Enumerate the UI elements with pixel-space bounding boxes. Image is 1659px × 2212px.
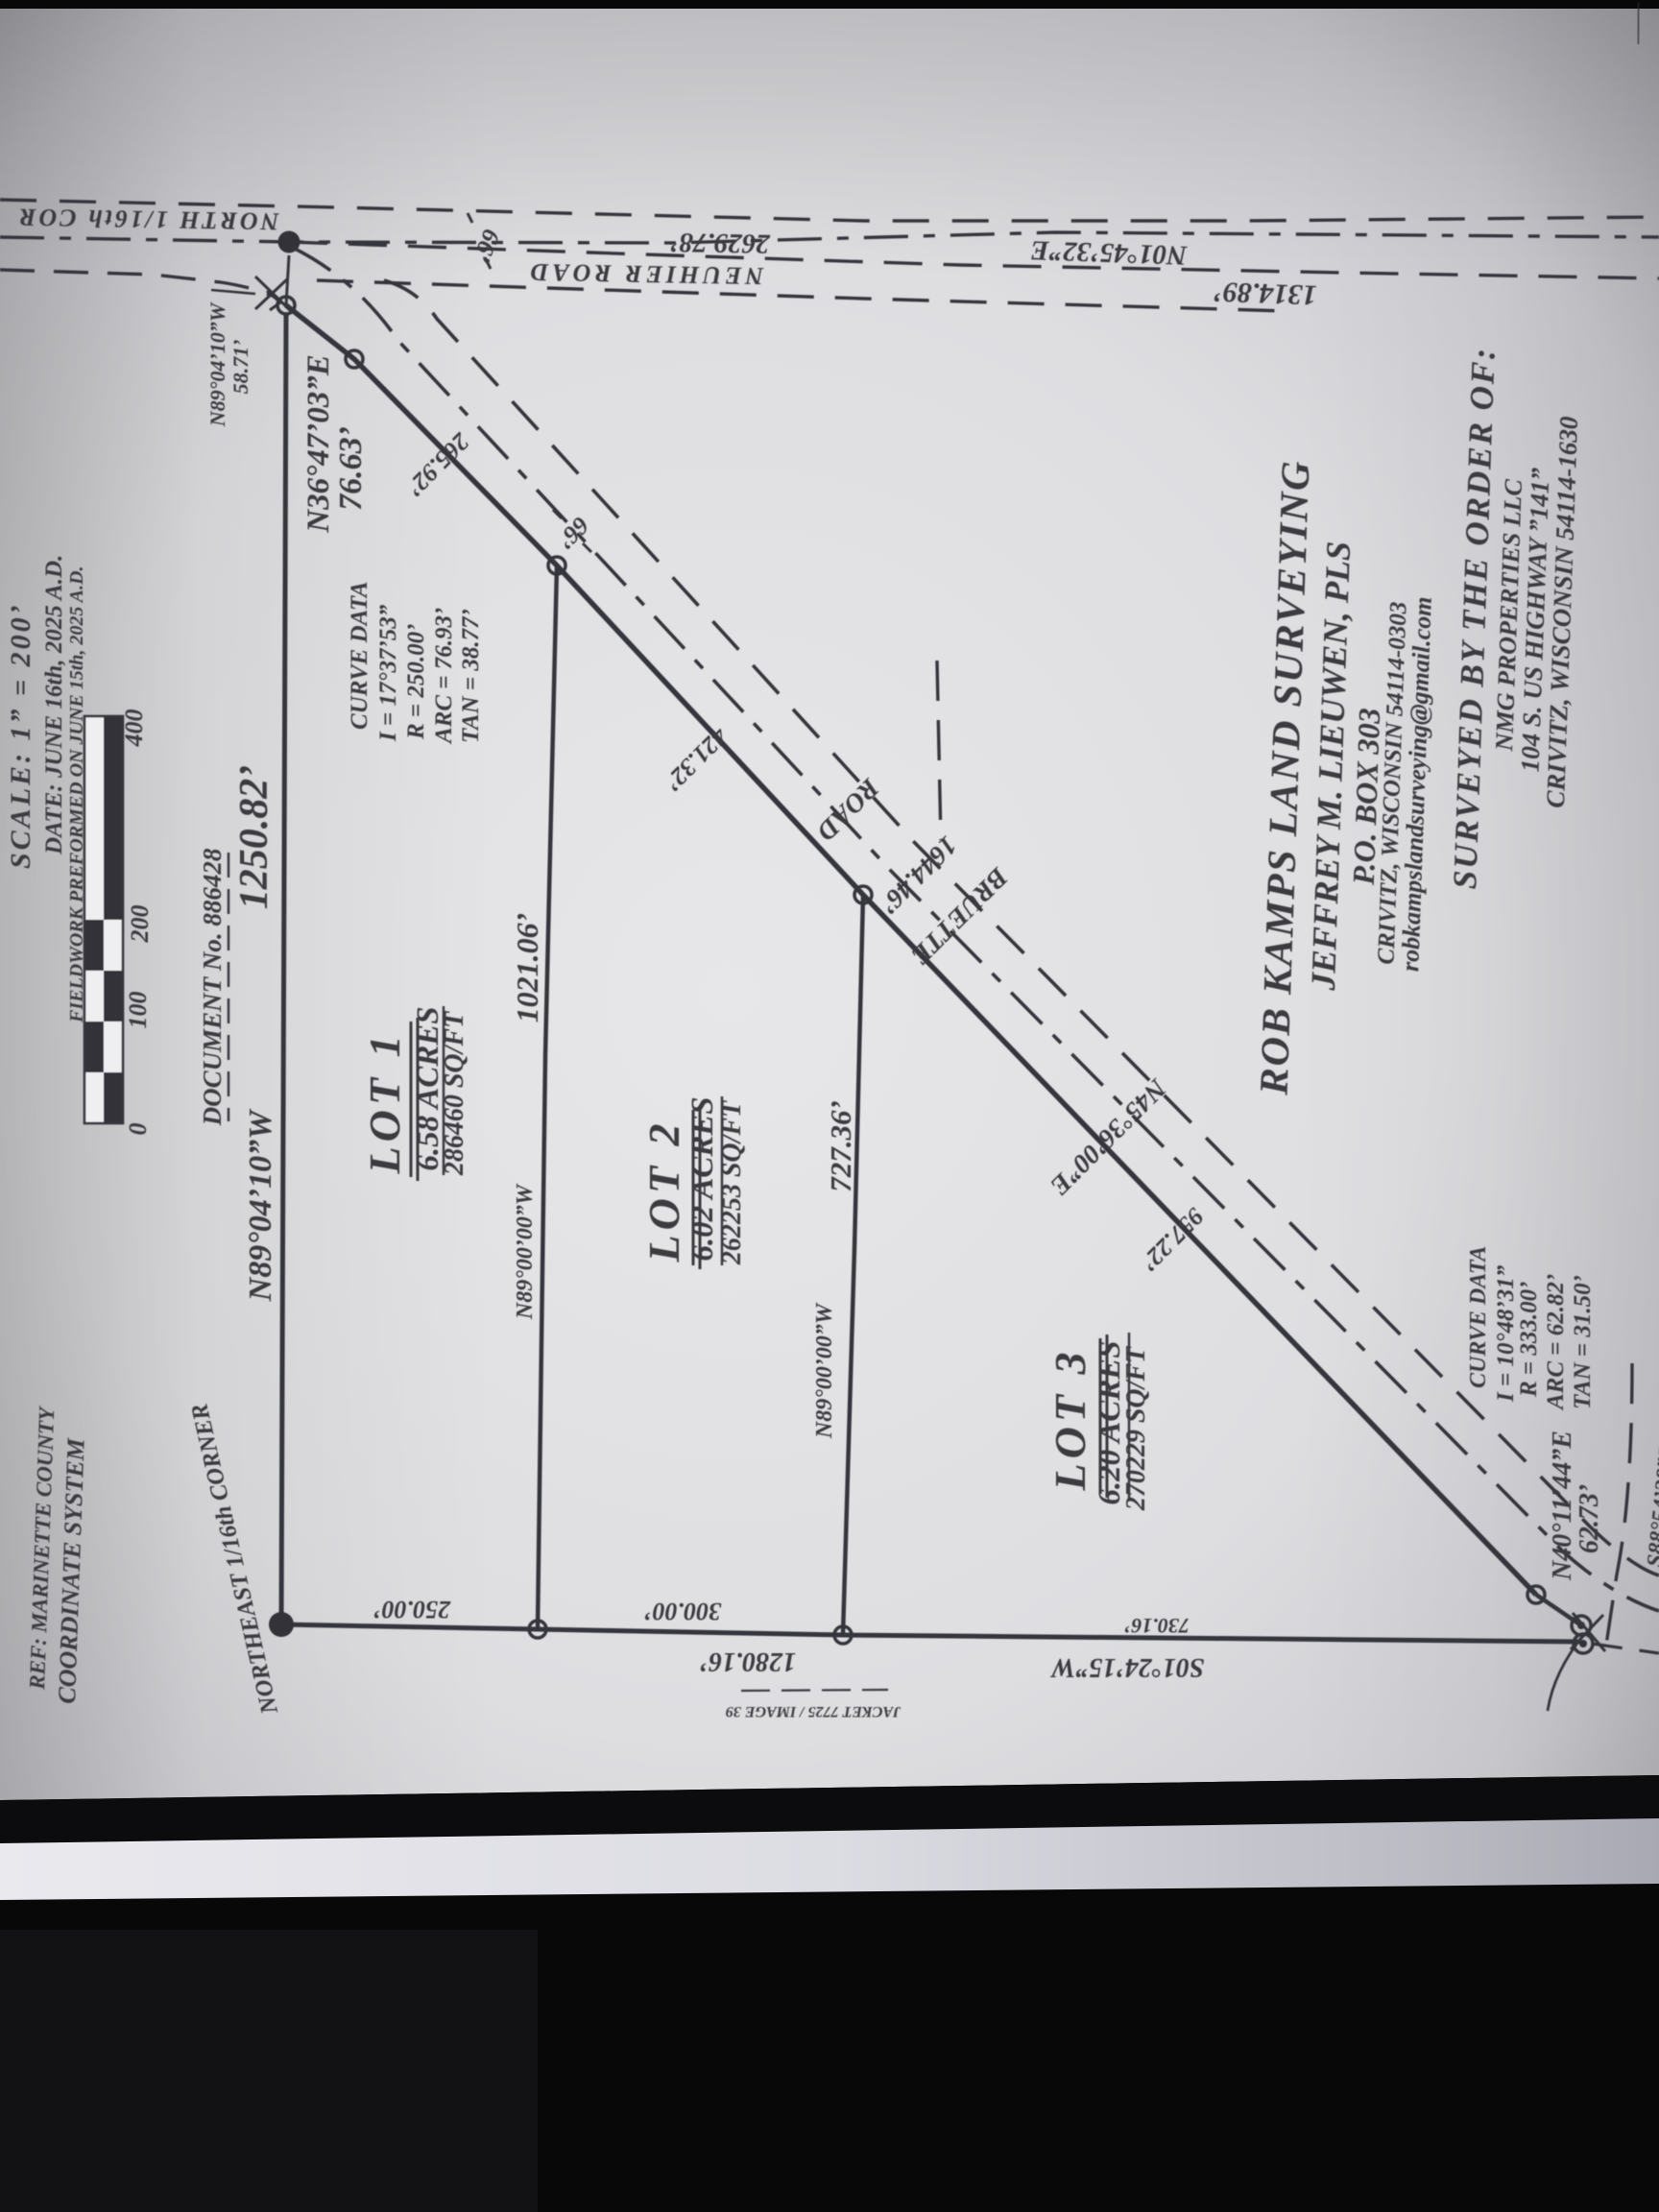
svg-text:ARC = 76.93’: ARC = 76.93’ bbox=[431, 608, 457, 745]
svg-text:1021.06’: 1021.06’ bbox=[510, 913, 544, 1023]
svg-text:286460 SQ/FT: 286460 SQ/FT bbox=[440, 1010, 469, 1176]
svg-text:DATE: JUNE 16th, 2025 A.D.: DATE: JUNE 16th, 2025 A.D. bbox=[41, 555, 67, 855]
svg-text:76.63’: 76.63’ bbox=[333, 426, 369, 511]
svg-text:I = 10°48’31”: I = 10°48’31” bbox=[1493, 1264, 1519, 1403]
svg-text:1250.82’: 1250.82’ bbox=[232, 765, 276, 910]
svg-text:CURVE DATA: CURVE DATA bbox=[1466, 1246, 1491, 1388]
svg-text:N89°04’10”W: N89°04’10”W bbox=[243, 1108, 278, 1302]
svg-text:NORTH 1/16th COR: NORTH 1/16th COR bbox=[16, 204, 280, 236]
svg-text:N89°00’00”W: N89°00’00”W bbox=[513, 1183, 538, 1320]
svg-text:TAN = 31.50’: TAN = 31.50’ bbox=[1570, 1275, 1596, 1409]
svg-text:250.00’: 250.00’ bbox=[373, 1596, 451, 1623]
svg-text:NEUHIER ROAD: NEUHIER ROAD bbox=[526, 258, 764, 290]
svg-text:DOCUMENT No. 886428: DOCUMENT No. 886428 bbox=[198, 848, 227, 1126]
svg-text:N36°47’03”E: N36°47’03”E bbox=[301, 354, 336, 534]
svg-text:300.00’: 300.00’ bbox=[644, 1598, 722, 1625]
svg-text:6.02 ACRES: 6.02 ACRES bbox=[685, 1096, 720, 1261]
svg-text:LOT 2: LOT 2 bbox=[639, 1119, 688, 1263]
svg-text:1314.89’: 1314.89’ bbox=[1213, 276, 1317, 311]
svg-text:FIELDWORK PREFORMED ON JUNE 15: FIELDWORK PREFORMED ON JUNE 15th, 2025 A… bbox=[66, 566, 87, 1023]
svg-text:N89°00’00”W: N89°00’00”W bbox=[812, 1302, 837, 1439]
svg-text:730.16’: 730.16’ bbox=[1124, 1614, 1190, 1638]
svg-text:58.71’: 58.71’ bbox=[228, 340, 252, 395]
svg-text:R = 333.00’: R = 333.00’ bbox=[1516, 1282, 1542, 1399]
svg-text:CURVE DATA: CURVE DATA bbox=[347, 582, 373, 730]
svg-text:ARC = 62.82’: ARC = 62.82’ bbox=[1543, 1274, 1569, 1411]
svg-text:200: 200 bbox=[126, 905, 154, 944]
svg-text:JACKET 7725 / IMAGE 39: JACKET 7725 / IMAGE 39 bbox=[726, 1703, 902, 1719]
svg-text:I = 17°37’53”: I = 17°37’53” bbox=[375, 604, 401, 742]
svg-text:N40°11’44”E: N40°11’44”E bbox=[1548, 1431, 1577, 1581]
svg-text:N01°45’32”E: N01°45’32”E bbox=[1030, 234, 1189, 271]
svg-text:270229 SQ/FT: 270229 SQ/FT bbox=[1121, 1345, 1151, 1511]
svg-text:LOT 1: LOT 1 bbox=[360, 1031, 409, 1175]
svg-text:2629.78’: 2629.78’ bbox=[670, 227, 771, 259]
svg-text:62.73’: 62.73’ bbox=[1575, 1484, 1604, 1553]
svg-text:262253 SQ/FT: 262253 SQ/FT bbox=[717, 1099, 747, 1265]
svg-text:N89°04’10”W: N89°04’10”W bbox=[205, 301, 229, 427]
svg-text:0: 0 bbox=[124, 1123, 152, 1136]
svg-text:LOT 3: LOT 3 bbox=[1046, 1348, 1094, 1492]
svg-text:R = 250.00’: R = 250.00’ bbox=[403, 624, 429, 741]
svg-text:SCALE: 1” = 200’: SCALE: 1” = 200’ bbox=[5, 602, 36, 869]
svg-text:TAN = 38.77’: TAN = 38.77’ bbox=[458, 609, 484, 743]
svg-text:727.36’: 727.36’ bbox=[824, 1100, 857, 1192]
svg-text:S01°24’15”W: S01°24’15”W bbox=[1049, 1652, 1204, 1682]
svg-text:1280.16’: 1280.16’ bbox=[700, 1647, 796, 1676]
svg-text:100: 100 bbox=[124, 992, 152, 1029]
svg-text:400: 400 bbox=[120, 709, 148, 748]
